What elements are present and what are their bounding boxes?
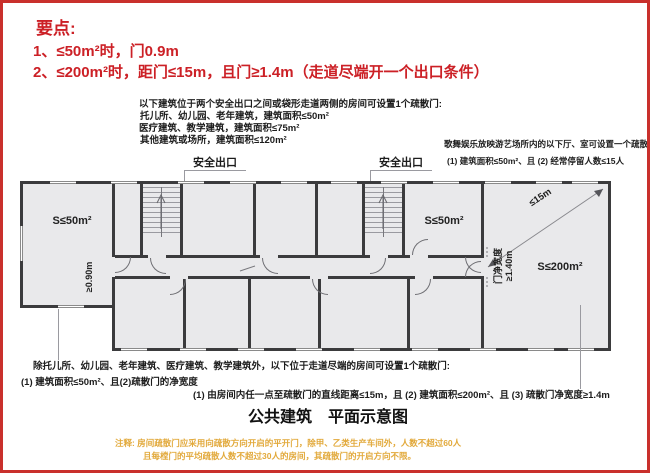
wall-segment: [248, 279, 251, 348]
floor-plan: S≤50m² S≤50m² S≤200m² ≤15m 门净宽度 ≥1.40m ≥…: [20, 181, 611, 351]
safety-exit-label-left: 安全出口: [193, 157, 237, 170]
footnote-line1: 注释: 房间疏散门应采用向疏散方向开启的平开门，除甲、乙类生产车间外，人数不超过…: [115, 439, 461, 449]
key-point-1: 1、≤50m²时，门0.9m: [33, 43, 179, 60]
door-right-width-text: 门净宽度: [493, 234, 504, 298]
leader-dead-end-left: [58, 309, 59, 360]
wall-segment: [315, 184, 318, 255]
wall-segment: [112, 277, 115, 351]
key-point-2: 2、≤200m²时，距门≤15m，且门≥1.4m（走道尽端开一个出口条件）: [33, 64, 489, 81]
window-opening: [180, 348, 206, 351]
window-opening: [111, 181, 137, 184]
window-opening: [50, 181, 76, 184]
wall-segment: [481, 181, 484, 257]
window-opening: [20, 226, 23, 261]
stair-divider: [161, 187, 162, 237]
safety-exit-label-right: 安全出口: [379, 157, 423, 170]
rule-entertainment-line1: 歌舞娱乐放映游艺场所内的以下厅、室可设置一个疏散门:: [444, 140, 650, 150]
footnote-line2: 且每樘门的平均疏散人数不超过30人的房间，其疏散门的开启方向不限。: [143, 452, 416, 462]
window-opening: [238, 348, 264, 351]
window-opening: [281, 181, 307, 184]
window-opening: [470, 348, 496, 351]
wall-segment: [278, 255, 370, 258]
window-opening: [485, 181, 511, 184]
wall-segment: [183, 279, 186, 348]
wall-segment: [481, 277, 484, 351]
room-mid-area-label: S≤50m²: [408, 215, 480, 227]
rule-two-exits-line4: 其他建筑或场所，建筑面积≤120m²: [140, 136, 287, 147]
plan-fill-left-bay: [20, 181, 115, 308]
rule-two-exits-line1: 以下建筑位于两个安全出口之间或袋形走道两侧的房间可设置1个疏散门:: [139, 100, 442, 111]
rule-dead-end-line1: 除托儿所、幼儿园、老年建筑、医疗建筑、教学建筑外，以下位于走道尽端的房间可设置1…: [33, 362, 450, 373]
window-opening: [121, 348, 147, 351]
leader-dead-end-right: [580, 305, 581, 389]
rule-two-exits-line3: 医疗建筑、教学建筑，建筑面积≤75m²: [139, 124, 299, 135]
wall-segment: [402, 184, 405, 255]
window-opening: [528, 348, 554, 351]
window-opening: [58, 305, 84, 308]
window-opening: [433, 181, 459, 184]
door-left-width-label: ≥0.90m: [84, 247, 96, 307]
window-opening: [230, 181, 256, 184]
exit-leader-right-h: [370, 170, 432, 171]
window-opening: [412, 348, 438, 351]
rule-entertainment-line2: (1) 建筑面积≤50m²、且 (2) 经常停留人数≤15人: [447, 157, 624, 167]
stair-divider: [383, 187, 384, 237]
window-opening: [331, 181, 357, 184]
wall-segment: [115, 276, 170, 279]
rule-two-exits-line2: 托儿所、幼儿园、老年建筑，建筑面积≤50m²: [140, 112, 329, 123]
window-opening: [354, 348, 380, 351]
room-left-area-label: S≤50m²: [36, 215, 108, 227]
wall-segment: [608, 181, 611, 351]
slide: 要点: 1、≤50m²时，门0.9m 2、≤200m²时，距门≤15m，且门≥1…: [0, 0, 650, 473]
rule-dead-end-line3: (1) 由房间内任一点至疏散门的直线距离≤15m，且 (2) 建筑面积≤200m…: [193, 391, 610, 402]
window-opening: [178, 181, 204, 184]
exit-leader-left-h: [184, 170, 246, 171]
wall-segment: [328, 276, 415, 279]
window-opening: [381, 181, 407, 184]
wall-segment: [112, 181, 115, 257]
room-right-area-label: S≤200m²: [522, 261, 598, 273]
key-points-heading: 要点:: [36, 19, 76, 39]
wall-segment: [407, 279, 410, 348]
door-right-width-label: 门净宽度 ≥1.40m: [493, 234, 515, 298]
window-opening: [568, 348, 594, 351]
window-opening: [572, 181, 598, 184]
wall-segment: [253, 184, 256, 255]
wall-segment: [388, 255, 410, 258]
door-right-width-value: ≥1.40m: [504, 234, 515, 298]
wall-segment: [166, 255, 260, 258]
window-opening: [296, 348, 322, 351]
diagram-caption: 公共建筑 平面示意图: [3, 409, 650, 427]
rule-dead-end-line2: (1) 建筑面积≤50m²、且(2)疏散门的净宽度: [21, 378, 198, 389]
wall-segment: [180, 184, 183, 255]
